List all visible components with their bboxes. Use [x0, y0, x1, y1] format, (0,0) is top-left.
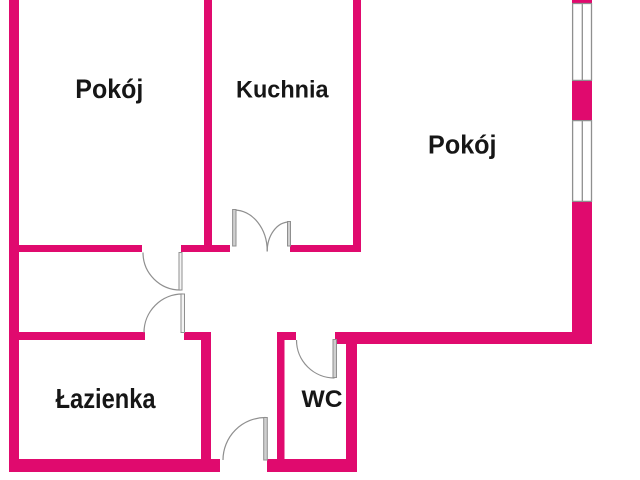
svg-text:WC: WC [302, 386, 343, 413]
svg-text:Łazienka: Łazienka [56, 383, 156, 414]
svg-text:Pokój: Pokój [428, 131, 497, 159]
svg-text:Kuchnia: Kuchnia [236, 77, 329, 104]
svg-text:Pokój: Pokój [75, 74, 143, 104]
